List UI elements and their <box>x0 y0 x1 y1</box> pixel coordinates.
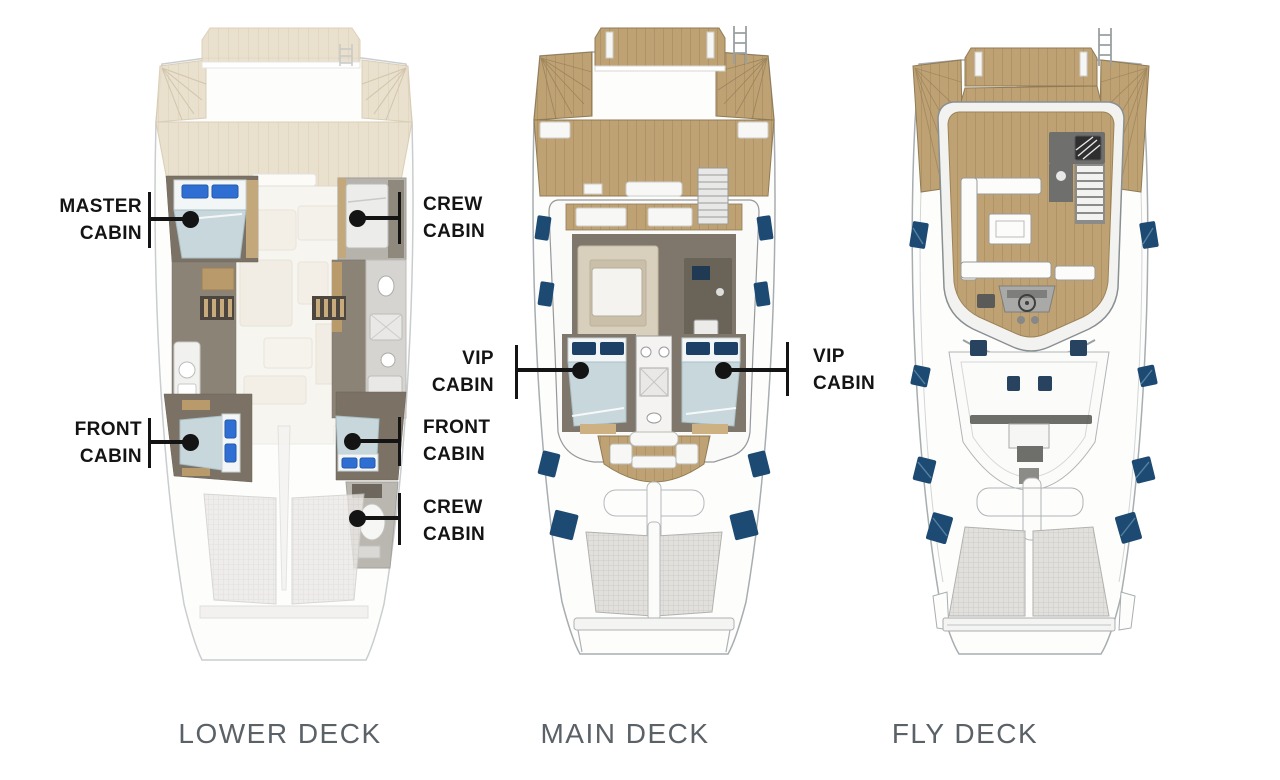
trampoline <box>586 532 652 616</box>
callout-label: VIPCABIN <box>432 345 494 399</box>
stairs-right <box>312 296 346 320</box>
front-pillow <box>225 420 236 438</box>
master-pillow <box>182 185 208 198</box>
trampoline <box>656 532 722 616</box>
main-deck-plan <box>528 20 780 665</box>
lower-deck-title: LOWER DECK <box>178 718 381 750</box>
main-deck-title: MAIN DECK <box>540 718 709 750</box>
vip-cabin-port <box>562 334 636 434</box>
front-pillow <box>225 444 236 462</box>
helm-seat <box>977 294 995 308</box>
callout-leader-line <box>723 368 787 372</box>
vip-pillow <box>714 342 738 355</box>
flybridge-stairs <box>698 168 728 224</box>
callout-dot <box>344 433 361 450</box>
flybridge <box>938 102 1124 351</box>
callout-dot <box>715 362 732 379</box>
stairs-left <box>200 296 234 320</box>
windscreen-strip <box>970 415 1092 424</box>
front-pillow <box>342 458 357 468</box>
deck-plan-figure: LOWER DECK MAIN DECK FLY DECK MASTERCABI… <box>0 0 1280 780</box>
fly-deck-title: FLY DECK <box>892 718 1038 750</box>
callout-leader-line <box>516 368 580 372</box>
vip-pillow <box>686 342 710 355</box>
callout-dot <box>572 362 589 379</box>
callout-dot <box>182 434 199 451</box>
vip-pillow <box>600 342 624 355</box>
callout-label: FRONTCABIN <box>75 416 142 470</box>
callout-dot <box>349 210 366 227</box>
callout-tick <box>515 345 518 399</box>
callout-label: FRONTCABIN <box>423 414 490 468</box>
callout-dot <box>182 211 199 228</box>
flybridge-table <box>989 214 1031 244</box>
bow-beam <box>200 606 368 618</box>
callout-label: VIPCABIN <box>813 343 875 397</box>
master-pillow <box>212 185 238 198</box>
front-pillow <box>360 458 375 468</box>
bow-beam <box>574 618 734 630</box>
front-cabin-port <box>164 394 252 482</box>
callout-label: CREWCABIN <box>423 494 485 548</box>
salon-table <box>592 268 642 316</box>
vip-bathroom <box>636 336 672 436</box>
lower-deck-plan <box>148 24 420 696</box>
fly-deck-plan <box>903 22 1165 667</box>
vip-cabin-starboard <box>672 334 746 434</box>
flybridge-stairs <box>1075 164 1105 224</box>
vip-pillow <box>572 342 596 355</box>
callout-label: MASTERCABIN <box>59 193 142 247</box>
callout-label: CREWCABIN <box>423 191 485 245</box>
callout-dot <box>349 510 366 527</box>
trampoline <box>204 494 276 604</box>
bow-tip <box>1119 592 1135 630</box>
